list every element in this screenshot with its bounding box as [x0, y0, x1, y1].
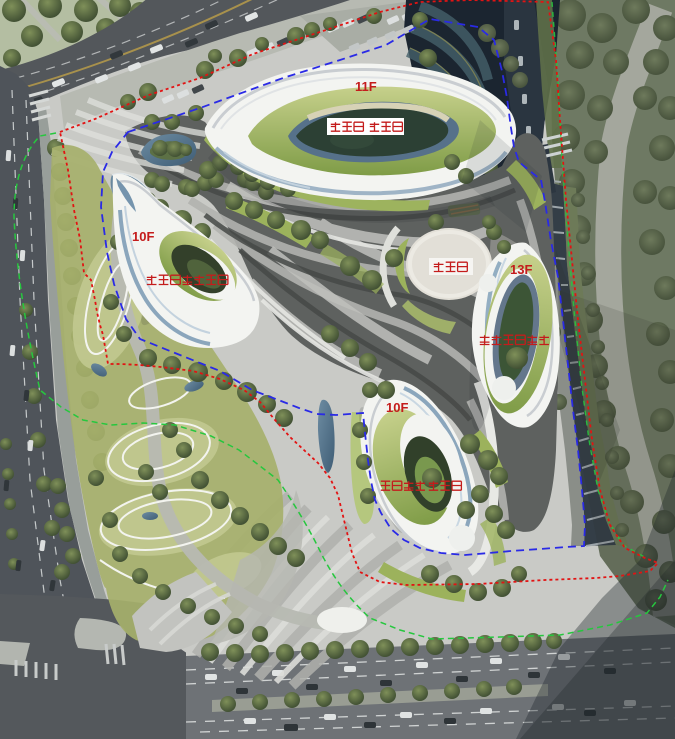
svg-text:13F: 13F — [510, 262, 532, 277]
svg-text:10F: 10F — [132, 229, 154, 244]
svg-text:11F: 11F — [355, 79, 377, 94]
svg-text:10F: 10F — [386, 400, 408, 415]
